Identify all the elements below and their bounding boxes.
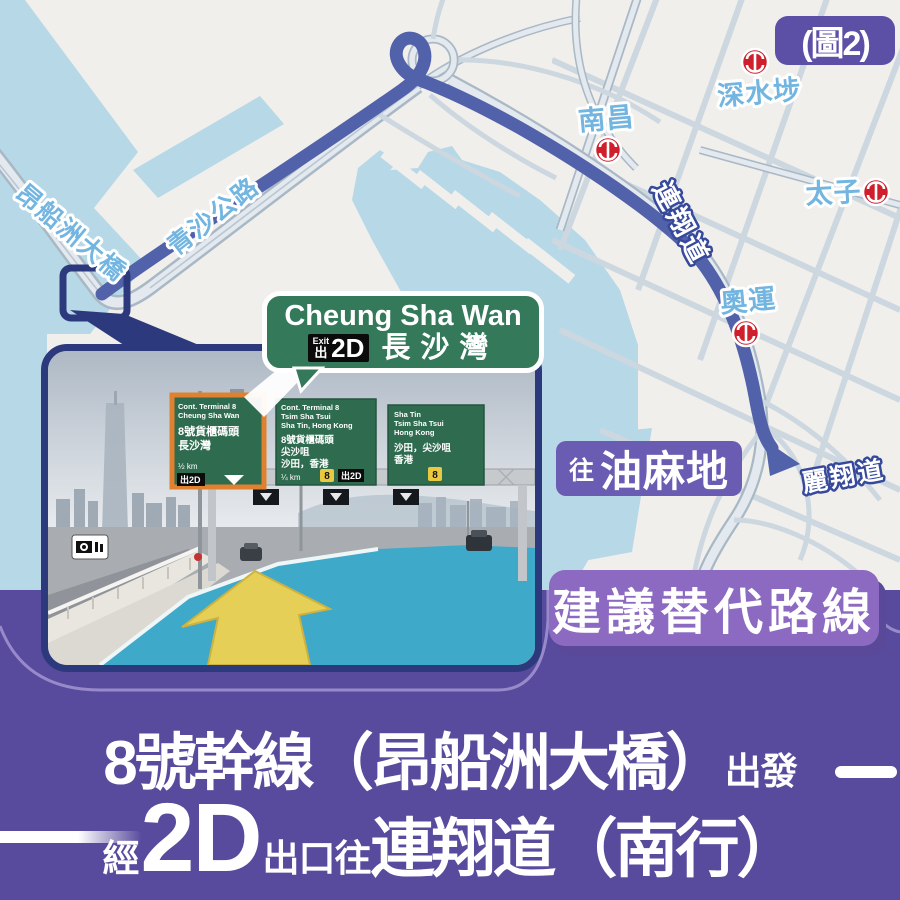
gantry-sign-tsim-sha-tsui: Cont. Terminal 8 Tsim Sha Tsui Sha Tin, …	[276, 399, 376, 485]
infographic-canvas: 昂船洲大橋 青沙公路 連翔道 麗翔道 深水埗 南昌 太子	[0, 0, 900, 900]
gantry-sign-cheung-sha-wan: Cont. Terminal 8 Cheung Sha Wan 8號貨櫃碼頭 長…	[172, 395, 264, 487]
svg-text:奧運: 奧運	[719, 284, 777, 319]
yau-ma-tei-label: 油麻地	[600, 438, 729, 499]
to-prefix: 往	[569, 451, 594, 487]
svg-text:Cheung Sha Wan: Cheung Sha Wan	[178, 411, 240, 420]
camera-sign-icon	[72, 535, 108, 559]
photo-scene: Cont. Terminal 8 Cheung Sha Wan 8號貨櫃碼頭 長…	[48, 351, 535, 665]
svg-text:香港: 香港	[393, 454, 414, 466]
to-yau-ma-tei-box: 往 油麻地	[556, 441, 742, 496]
svg-text:½ km: ½ km	[178, 462, 198, 471]
exit-chip: Exit 出 2D	[308, 334, 370, 362]
lane-control-signals	[253, 489, 419, 505]
callout-tail	[291, 366, 325, 394]
gantry-sign-sha-tin: Sha Tin Tsim Sha Tsui Hong Kong 沙田，尖沙咀 香…	[388, 405, 484, 485]
headline-dash-left	[0, 831, 142, 843]
svg-text:¼ km: ¼ km	[281, 473, 301, 482]
station-prince-edward: 太子	[805, 177, 889, 210]
svg-text:Cont. Terminal 8: Cont. Terminal 8	[281, 403, 339, 412]
svg-text:8號貨櫃碼頭: 8號貨櫃碼頭	[281, 434, 334, 446]
svg-text:Tsim Sha Tsui: Tsim Sha Tsui	[394, 419, 444, 428]
svg-text:8: 8	[432, 470, 438, 481]
callout-chinese: 長沙灣	[381, 334, 498, 363]
svg-text:沙田，尖沙咀: 沙田，尖沙咀	[394, 442, 452, 454]
headline-destination: 連翔道（南行）	[371, 798, 798, 890]
mtr-icon	[742, 49, 768, 75]
svg-text:太子: 太子	[805, 177, 862, 210]
figure-label: (圖2)	[775, 16, 895, 65]
svg-text:長沙灣: 長沙灣	[178, 438, 211, 452]
svg-text:Sha Tin: Sha Tin	[394, 410, 421, 419]
mtr-icon	[863, 179, 889, 205]
callout-english: Cheung Sha Wan	[284, 302, 521, 331]
mtr-icon	[733, 320, 759, 346]
svg-text:沙田，香港: 沙田，香港	[281, 458, 329, 470]
svg-text:Hong Kong: Hong Kong	[394, 428, 435, 437]
svg-text:8: 8	[324, 471, 330, 482]
svg-text:Cont. Terminal 8: Cont. Terminal 8	[178, 402, 236, 411]
svg-text:尖沙咀: 尖沙咀	[281, 446, 310, 458]
svg-text:出2D: 出2D	[180, 474, 201, 485]
svg-text:8號貨櫃碼頭: 8號貨櫃碼頭	[178, 424, 240, 438]
headline-dash-right	[835, 766, 897, 778]
mtr-icon	[595, 137, 621, 163]
alternative-route-box: 建議替代路線	[549, 570, 879, 646]
headline-exit-code: 2D	[141, 782, 261, 894]
svg-text:Tsim Sha Tsui: Tsim Sha Tsui	[281, 412, 331, 421]
svg-text:Sha Tin, Hong Kong: Sha Tin, Hong Kong	[281, 421, 353, 430]
svg-text:南昌: 南昌	[577, 102, 635, 137]
svg-text:出2D: 出2D	[341, 470, 362, 481]
exit-callout-sign: Cheung Sha Wan Exit 出 2D 長沙灣	[262, 291, 544, 373]
